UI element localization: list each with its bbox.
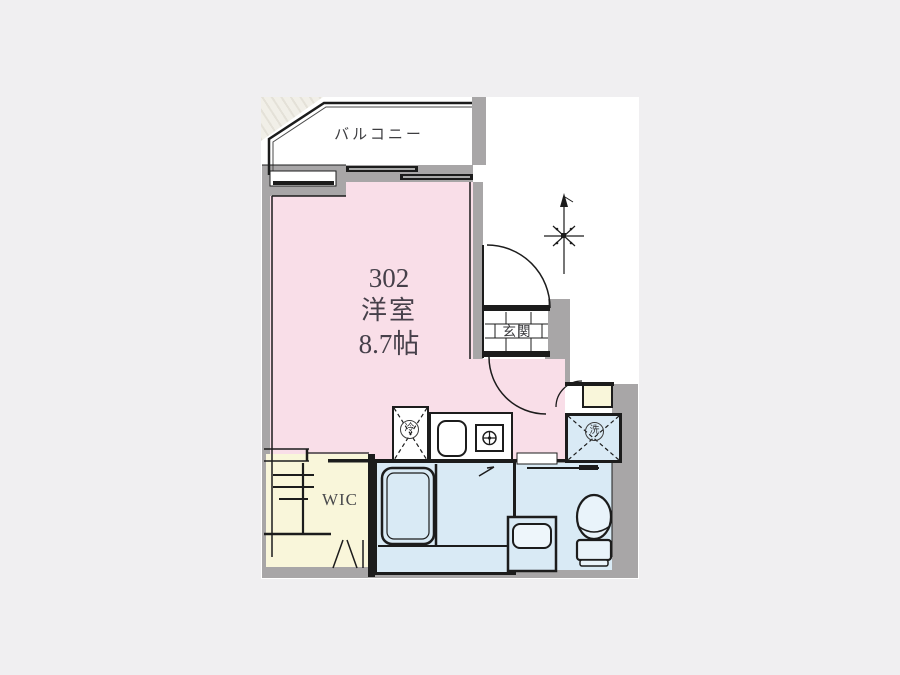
room-label: 302 洋室 8.7帖 — [333, 262, 445, 361]
wic-area — [266, 454, 368, 567]
main-room-window-strip — [346, 182, 473, 196]
stove-burner — [475, 424, 504, 452]
entrance-label: 玄関 — [488, 320, 546, 340]
toilet-room — [515, 463, 612, 570]
room-type-label: 洋室 — [333, 294, 445, 327]
north-compass-icon — [544, 193, 584, 274]
washer-icon: 洗 — [585, 422, 604, 441]
wic-label: WIC — [316, 490, 364, 510]
storage-box — [582, 384, 613, 408]
room-size-label: 8.7帖 — [333, 327, 445, 361]
bathroom-area — [374, 460, 516, 575]
kitchen-sink — [437, 420, 467, 457]
room-unit-number: 302 — [333, 262, 445, 294]
floor-plan: バルコニー 302 洋室 8.7帖 玄関 WIC 冷 洗 — [261, 97, 639, 579]
balcony-label: バルコニー — [327, 123, 431, 144]
page-background: バルコニー 302 洋室 8.7帖 玄関 WIC 冷 洗 — [0, 0, 900, 675]
building-corner-hatch — [261, 97, 323, 141]
refrigerator-icon: 冷 — [400, 420, 419, 439]
